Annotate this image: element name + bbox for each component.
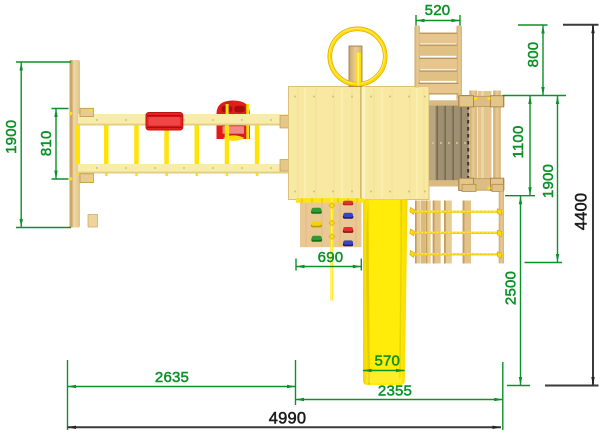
svg-text:810: 810 [38,130,55,156]
svg-text:2500: 2500 [502,271,519,305]
svg-text:690: 690 [318,249,344,266]
svg-text:1100: 1100 [510,125,527,158]
svg-text:2355: 2355 [378,383,412,400]
svg-text:520: 520 [425,2,451,19]
svg-text:4400: 4400 [573,193,591,231]
svg-text:2635: 2635 [155,369,189,386]
svg-text:1900: 1900 [540,164,557,198]
svg-text:4990: 4990 [269,410,307,428]
svg-text:570: 570 [374,353,400,370]
svg-text:1900: 1900 [3,120,20,154]
svg-text:800: 800 [525,42,542,68]
